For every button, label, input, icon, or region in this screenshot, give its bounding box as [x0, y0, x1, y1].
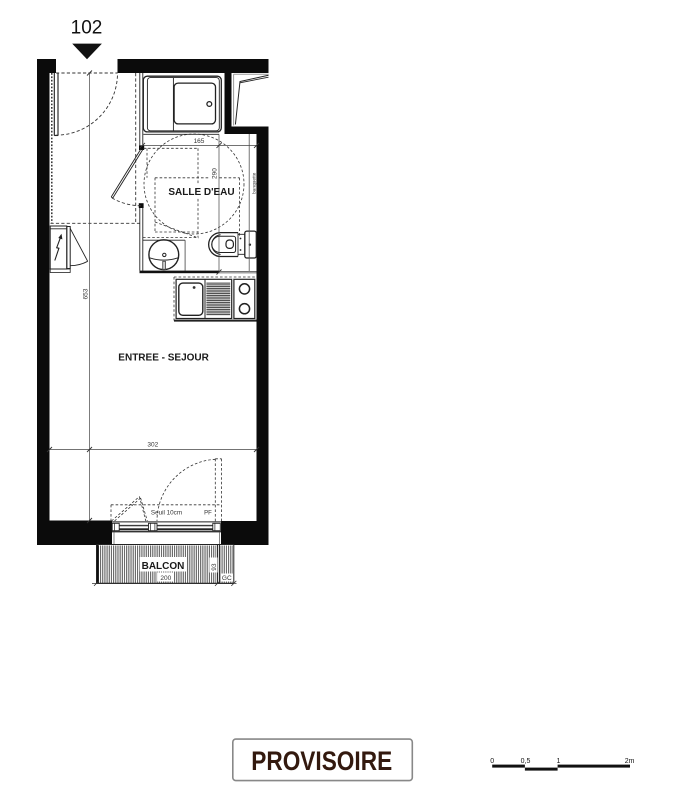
svg-text:SALLE D'EAU: SALLE D'EAU	[168, 187, 234, 198]
svg-text:165: 165	[194, 138, 205, 145]
svg-text:BALCON: BALCON	[142, 561, 185, 572]
svg-text:102: 102	[71, 18, 103, 39]
svg-text:200: 200	[160, 575, 171, 582]
svg-text:PROVISOIRE: PROVISOIRE	[251, 747, 392, 776]
svg-text:302: 302	[147, 442, 158, 449]
svg-text:1: 1	[557, 758, 561, 765]
svg-text:0: 0	[490, 758, 494, 765]
svg-text:290: 290	[211, 168, 218, 179]
svg-text:653: 653	[83, 288, 90, 299]
svg-text:PF: PF	[204, 510, 212, 516]
svg-text:banquette: banquette	[251, 172, 257, 194]
svg-text:Seuil 10cm: Seuil 10cm	[151, 509, 182, 516]
svg-text:2m: 2m	[625, 758, 635, 765]
svg-text:GC: GC	[222, 575, 232, 582]
svg-text:0,5: 0,5	[521, 758, 531, 765]
svg-text:ENTREE - SEJOUR: ENTREE - SEJOUR	[118, 353, 209, 364]
svg-text:93: 93	[211, 563, 218, 571]
